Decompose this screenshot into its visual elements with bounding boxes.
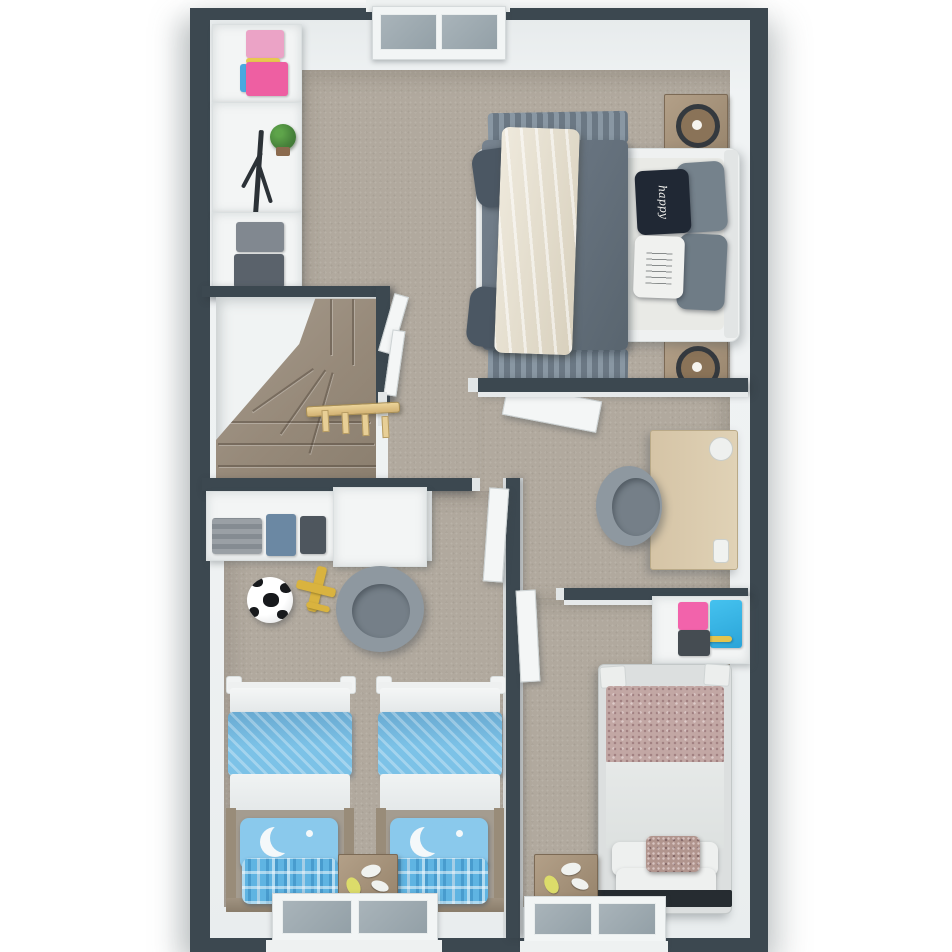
gray-folded-clothes xyxy=(212,518,262,554)
desk xyxy=(650,430,738,570)
central-wall-edge xyxy=(520,478,523,938)
moon-cut xyxy=(420,823,450,853)
moon-cut xyxy=(270,823,300,853)
desk-accessory xyxy=(713,539,729,563)
bed-side-rail xyxy=(494,808,504,912)
dark-folded-clothes xyxy=(300,516,326,554)
bed-side-rail xyxy=(226,808,236,912)
window-pane xyxy=(598,903,656,935)
master-wall-end-cap xyxy=(468,378,478,392)
top-window-pane-left xyxy=(380,14,437,50)
denim-folded-clothes xyxy=(266,514,296,556)
yellow-decor xyxy=(541,873,561,896)
master-wall-south xyxy=(478,378,748,392)
window-pane xyxy=(358,900,428,934)
lamp-bulb xyxy=(692,120,702,130)
central-dividing-wall xyxy=(506,478,520,938)
master-wall-face xyxy=(478,392,748,397)
pink-folded-clothes-bright xyxy=(246,62,288,96)
star-dot xyxy=(456,830,463,837)
railing-baluster xyxy=(381,416,389,438)
mauve-speckled-blanket xyxy=(606,686,724,764)
kids-wall-end-cap xyxy=(472,478,480,491)
single-room-wall-end-cap xyxy=(556,588,564,600)
desk-cup xyxy=(709,437,733,461)
stairwell xyxy=(216,297,376,478)
railing-baluster xyxy=(341,412,349,434)
white-text-pillow xyxy=(633,235,685,299)
sheet-fold xyxy=(380,688,500,714)
gray-folded-clothes-light xyxy=(236,222,284,252)
soccer-ball xyxy=(247,577,293,623)
window-outer-sill xyxy=(266,940,442,952)
floorplan-render: happy xyxy=(0,0,952,952)
window-pane xyxy=(282,900,352,934)
sheet-fold xyxy=(230,688,350,714)
kids-wardrobe xyxy=(333,487,427,567)
white-sheet xyxy=(380,774,500,812)
white-sheet xyxy=(230,774,350,812)
blue-duvet xyxy=(228,712,352,776)
stair-wall-north xyxy=(202,286,390,297)
pebble-decor xyxy=(560,861,582,877)
kids-tub-chair-seat xyxy=(352,584,410,638)
lamp-bulb xyxy=(692,362,702,372)
pebble-decor xyxy=(370,878,390,894)
cream-throw-blanket xyxy=(494,127,580,356)
plant-pot xyxy=(276,147,290,156)
dark-folded-clothes xyxy=(678,630,710,656)
top-window-pane-right xyxy=(441,14,498,50)
gray-folded-clothes-dark xyxy=(234,254,284,288)
pink-folded-clothes xyxy=(678,602,708,630)
star-dot xyxy=(306,830,313,837)
pink-folded-clothes-light xyxy=(246,30,284,58)
navy-script-pillow: happy xyxy=(634,169,691,236)
blue-duvet xyxy=(378,712,502,776)
pillow-script-text: happy xyxy=(656,185,671,220)
floral-pillow xyxy=(646,836,700,872)
railing-baluster xyxy=(361,414,369,436)
winder-stairs xyxy=(216,297,376,478)
twin-bed-left xyxy=(226,676,354,912)
pebble-decor xyxy=(570,876,590,892)
window-outer-sill xyxy=(520,941,668,952)
pillow-text-lines xyxy=(645,250,672,285)
bed-post xyxy=(703,663,730,687)
pebble-decor xyxy=(360,863,382,880)
railing-baluster xyxy=(321,410,329,432)
office-chair-seat xyxy=(612,478,660,536)
window-pane xyxy=(534,903,592,935)
